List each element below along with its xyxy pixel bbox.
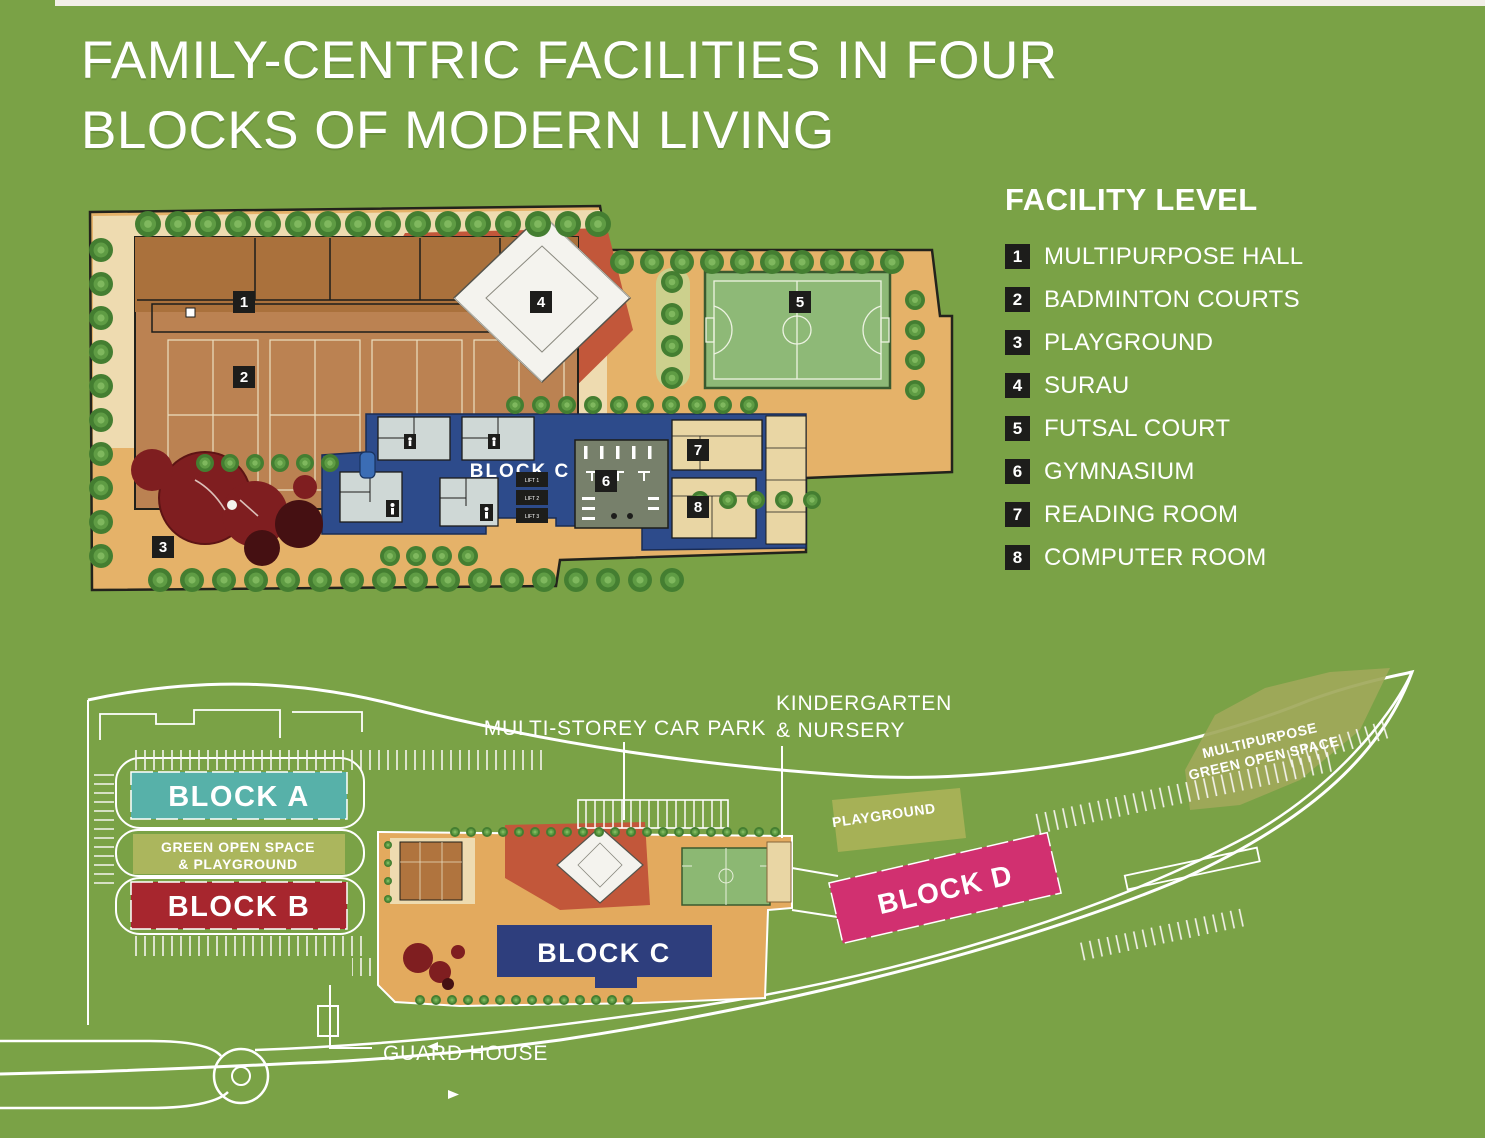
legend-badge: 2 [1005,287,1030,312]
legend-label: GYMNASIUM [1044,458,1195,486]
legend-item: 1 MULTIPURPOSE HALL [1005,235,1303,278]
computer-room [672,478,756,538]
kindergarten-building [767,842,791,902]
lift-label: LIFT 1 [525,478,540,484]
legend-title: FACILITY LEVEL [1005,182,1303,218]
car-icon [360,452,375,478]
lift-label: LIFT 3 [525,514,540,520]
block-a: BLOCK A [131,772,347,819]
svg-text:3: 3 [159,539,167,556]
legend-label: READING ROOM [1044,501,1238,529]
site-plan: BLOCK A GREEN OPEN SPACE & PLAYGROUND BL… [0,668,1412,1108]
block-b-label: BLOCK B [168,891,311,923]
gymnasium-area [575,440,668,528]
svg-text:1: 1 [240,294,248,311]
block-d: BLOCK D [829,833,1061,944]
facility-plan: BLOCK C [89,206,952,592]
green-open-space-strip: GREEN OPEN SPACE & PLAYGROUND [133,834,345,874]
legend-label: SURAU [1044,372,1130,400]
svg-text:8: 8 [694,499,702,516]
legend-label: PLAYGROUND [1044,329,1213,357]
legend-item: 4 SURAU [1005,364,1303,407]
facility-badge-2: 2 [233,366,255,388]
legend-badge: 1 [1005,244,1030,269]
legend-badge: 4 [1005,373,1030,398]
legend-item: 7 READING ROOM [1005,493,1303,536]
svg-text:4: 4 [537,294,546,311]
legend-item: 3 PLAYGROUND [1005,321,1303,364]
facility-badge-4: 4 [530,291,552,313]
legend-item: 5 FUTSAL COURT [1005,407,1303,450]
facility-badge-5: 5 [789,291,811,313]
facility-legend: FACILITY LEVEL 1 MULTIPURPOSE HALL 2 BAD… [1005,182,1303,579]
facility-badge-3: 3 [152,536,174,558]
block-a-label: BLOCK A [168,781,310,813]
block-c-label: BLOCK C [537,938,671,968]
legend-badge: 6 [1005,459,1030,484]
legend-badge: 5 [1005,416,1030,441]
facility-badge-6: 6 [595,470,617,492]
central-deck [378,822,792,1006]
legend-item: 6 GYMNASIUM [1005,450,1303,493]
car-park-label: MULTI-STOREY CAR PARK [484,717,766,740]
futsal-court [705,272,890,388]
legend-label: MULTIPURPOSE HALL [1044,243,1303,271]
legend-badge: 7 [1005,502,1030,527]
facility-badge-1: 1 [233,291,255,313]
multi-storey-car-park-building [578,800,728,828]
legend-item: 8 COMPUTER ROOM [1005,536,1303,579]
roundabout [214,1049,268,1103]
toilet-icon [386,500,399,517]
kindergarten-label-line2: & NURSERY [776,719,905,742]
guard-house-building [318,1006,338,1036]
svg-text:6: 6 [602,473,610,490]
legend-label: BADMINTON COURTS [1044,286,1300,314]
guard-house-label: GUARD HOUSE [383,1042,548,1065]
neighbour-outlines [100,710,362,740]
svg-text:5: 5 [796,294,804,311]
kindergarten-label-line1: KINDERGARTEN [776,692,952,715]
svg-text:2: 2 [240,369,248,386]
guard-house-leader [330,985,372,1048]
block-b: BLOCK B [131,882,347,929]
legend-label: COMPUTER ROOM [1044,544,1267,572]
lift-label: LIFT 2 [525,496,540,502]
green-open-space-label-line1: GREEN OPEN SPACE [161,839,315,855]
toilet-icon [480,504,493,521]
legend-item: 2 BADMINTON COURTS [1005,278,1303,321]
legend-label: FUTSAL COURT [1044,415,1230,443]
legend-badge: 8 [1005,545,1030,570]
svg-text:7: 7 [694,442,702,459]
lift-stack: LIFT 1 LIFT 2 LIFT 3 [516,472,548,523]
facility-badge-7: 7 [687,439,709,461]
legend-badge: 3 [1005,330,1030,355]
reading-room [672,420,762,470]
page: { "page": {"background": "#7aa246", "top… [0,0,1485,1138]
green-open-space-label-line2: & PLAYGROUND [178,856,297,872]
facility-badge-8: 8 [687,496,709,518]
